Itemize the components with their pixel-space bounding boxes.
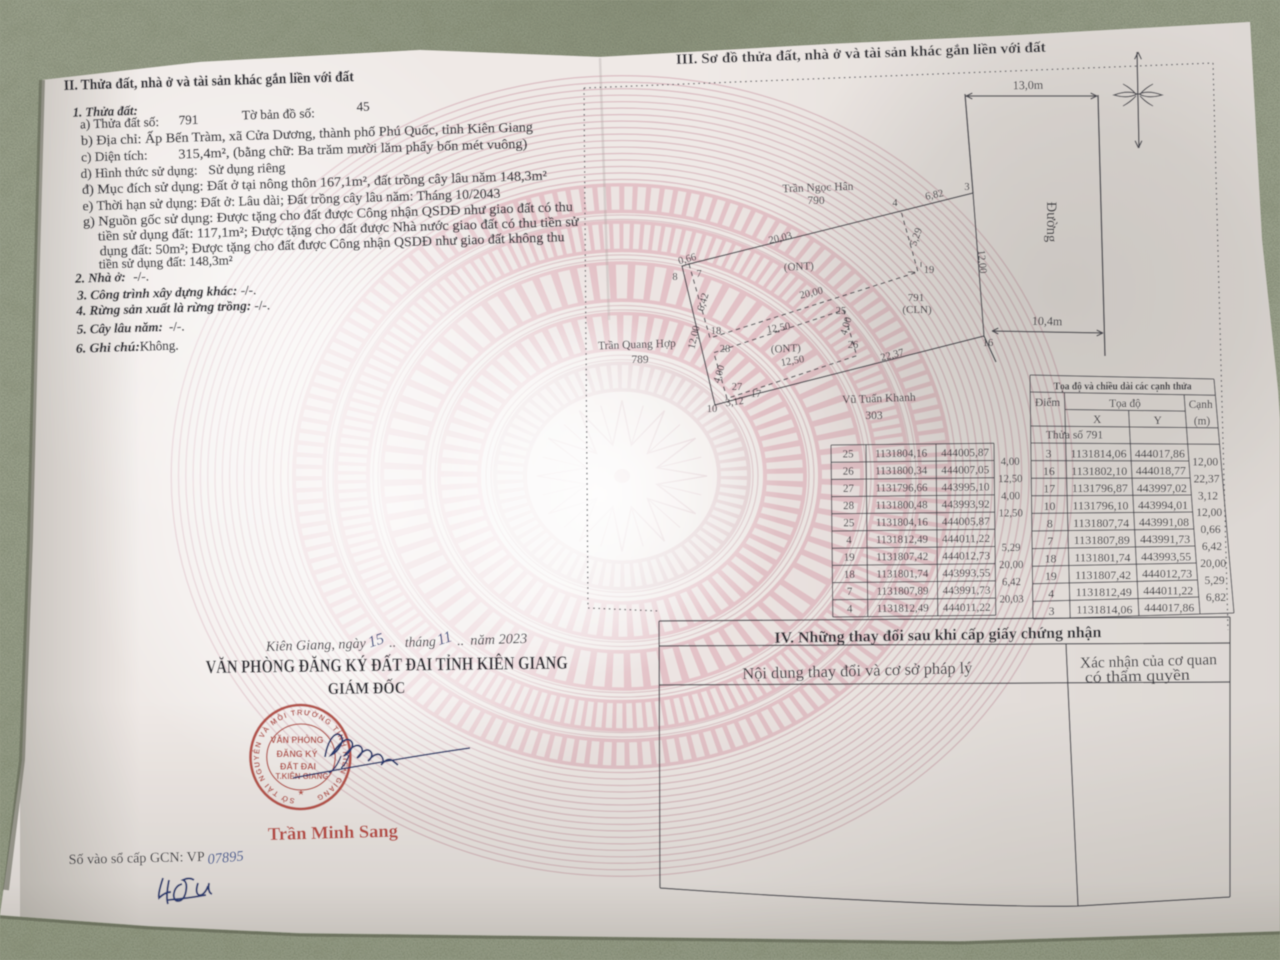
svg-text:20,00: 20,00: [1200, 558, 1226, 570]
svg-text:1131801,74: 1131801,74: [876, 568, 929, 581]
svg-text:13,0m: 13,0m: [1013, 78, 1044, 93]
svg-text:17: 17: [1043, 481, 1055, 495]
svg-text:a) Thửa đất số:: a) Thửa đất số:: [80, 114, 159, 131]
svg-text:6. Ghi chú:: 6. Ghi chú:: [76, 339, 140, 356]
svg-text:443991,73: 443991,73: [1140, 532, 1190, 546]
svg-text:791: 791: [179, 112, 199, 128]
svg-text:4: 4: [1048, 587, 1054, 601]
svg-text:27: 27: [732, 382, 743, 393]
svg-text:443997,02: 443997,02: [1137, 481, 1187, 495]
svg-text:7: 7: [1047, 534, 1053, 548]
svg-text:-/-.: -/-.: [254, 297, 270, 312]
svg-text:28: 28: [720, 344, 731, 355]
svg-text:ĐĂNG KÝ: ĐĂNG KÝ: [277, 748, 319, 759]
svg-text:Tọa độ: Tọa độ: [1109, 398, 1141, 410]
svg-text:..: ..: [389, 636, 396, 651]
svg-text:303: 303: [865, 410, 883, 422]
svg-text:19: 19: [844, 552, 856, 564]
svg-text:Tờ bản đồ số:: Tờ bản đồ số:: [242, 105, 315, 122]
svg-text:(ONT): (ONT): [771, 342, 802, 356]
svg-text:X: X: [1093, 414, 1101, 426]
svg-text:4: 4: [846, 534, 852, 546]
svg-text:45: 45: [356, 99, 369, 114]
svg-text:12,50: 12,50: [999, 507, 1023, 519]
svg-text:1131800,34: 1131800,34: [875, 465, 928, 478]
svg-text:444017,86: 444017,86: [1144, 601, 1194, 615]
svg-text:20,03: 20,03: [999, 593, 1023, 605]
svg-text:4: 4: [847, 603, 853, 615]
svg-text:12,00: 12,00: [975, 250, 988, 274]
svg-text:3: 3: [1049, 604, 1055, 618]
svg-text:12,00: 12,00: [1192, 456, 1218, 468]
svg-text:5,29: 5,29: [1205, 575, 1225, 587]
svg-text:-/-.: -/-.: [169, 318, 185, 333]
svg-text:1131796,87: 1131796,87: [1072, 481, 1128, 495]
svg-text:791: 791: [908, 292, 925, 304]
svg-text:16: 16: [983, 338, 994, 349]
svg-text:6,42: 6,42: [1202, 541, 1222, 553]
svg-text:17: 17: [751, 389, 762, 400]
svg-text:8: 8: [1047, 516, 1053, 530]
svg-text:1131814,06: 1131814,06: [1071, 446, 1127, 460]
svg-text:Số vào sổ cấp GCN: VP: Số vào sổ cấp GCN: VP: [69, 850, 206, 868]
svg-text:c) Diện tích:: c) Diện tích:: [81, 147, 148, 164]
svg-text:4: 4: [892, 198, 898, 209]
svg-text:10: 10: [707, 404, 718, 415]
svg-text:26: 26: [848, 340, 859, 351]
svg-text:26: 26: [843, 466, 855, 478]
svg-text:443993,55: 443993,55: [942, 567, 991, 580]
svg-text:Vũ Tuấn Khanh: Vũ Tuấn Khanh: [842, 391, 916, 407]
svg-text:25: 25: [843, 517, 855, 529]
svg-text:443993,55: 443993,55: [1141, 549, 1191, 563]
svg-text:3: 3: [964, 182, 969, 193]
svg-text:444011,22: 444011,22: [942, 533, 990, 546]
svg-text:7: 7: [847, 586, 853, 598]
svg-text:443991,08: 443991,08: [1139, 515, 1189, 529]
svg-text:5,29: 5,29: [1002, 542, 1021, 554]
svg-text:1131802,10: 1131802,10: [1071, 464, 1127, 478]
svg-text:Không.: Không.: [140, 338, 179, 354]
svg-text:444012,73: 444012,73: [942, 550, 991, 563]
svg-text:1131804,16: 1131804,16: [876, 516, 929, 529]
svg-text:444011,22: 444011,22: [943, 602, 991, 615]
svg-text:443995,10: 443995,10: [941, 481, 990, 494]
svg-text:444018,77: 444018,77: [1136, 464, 1186, 478]
svg-text:444005,87: 444005,87: [941, 447, 990, 460]
svg-text:28: 28: [843, 500, 855, 512]
svg-text:..: ..: [457, 634, 464, 649]
svg-text:6,82: 6,82: [1206, 592, 1226, 604]
svg-text:-/-.: -/-.: [133, 268, 149, 283]
svg-text:444005,87: 444005,87: [942, 516, 991, 529]
svg-text:5. Cây lâu năm:: 5. Cây lâu năm:: [77, 319, 163, 337]
svg-text:3: 3: [1046, 446, 1052, 460]
svg-text:-/-.: -/-.: [240, 282, 256, 297]
svg-text:(CLN): (CLN): [902, 304, 932, 316]
svg-text:★: ★: [297, 788, 304, 797]
svg-text:4,00: 4,00: [1001, 456, 1020, 468]
svg-text:18: 18: [711, 326, 722, 337]
svg-text:3,12: 3,12: [1198, 490, 1218, 502]
svg-text:1131807,42: 1131807,42: [876, 551, 928, 564]
svg-text:19: 19: [1045, 569, 1057, 583]
svg-text:GIÁM ĐỐC: GIÁM ĐỐC: [328, 677, 406, 698]
svg-text:1131796,10: 1131796,10: [1073, 498, 1129, 512]
svg-text:443991,73: 443991,73: [942, 585, 991, 598]
svg-text:1131812,49: 1131812,49: [1076, 585, 1132, 599]
svg-text:tháng: tháng: [405, 634, 437, 651]
svg-text:Điểm: Điểm: [1035, 397, 1060, 409]
svg-text:4,00: 4,00: [1001, 490, 1020, 502]
svg-text:444007,05: 444007,05: [941, 464, 990, 477]
svg-text:19: 19: [924, 265, 935, 276]
svg-text:25: 25: [843, 448, 855, 460]
svg-text:444011,22: 444011,22: [1143, 584, 1193, 598]
svg-text:2. Nhà ở:: 2. Nhà ở:: [74, 269, 126, 286]
svg-text:ĐẤT ĐAI: ĐẤT ĐAI: [280, 762, 316, 772]
svg-text:10: 10: [1044, 499, 1056, 513]
svg-text:12,50: 12,50: [998, 473, 1022, 485]
svg-text:1131796,66: 1131796,66: [875, 482, 928, 495]
svg-text:10,4m: 10,4m: [1032, 314, 1063, 329]
svg-text:22,37: 22,37: [1194, 473, 1220, 485]
svg-text:1131807,89: 1131807,89: [1074, 533, 1130, 547]
svg-text:Sử dụng riêng: Sử dụng riêng: [208, 160, 286, 177]
svg-text:Đường: Đường: [1043, 202, 1059, 243]
svg-text:Kiên Giang, ngày: Kiên Giang, ngày: [265, 636, 367, 655]
svg-text:20,00: 20,00: [999, 559, 1023, 571]
svg-text:Cạnh: Cạnh: [1189, 399, 1213, 411]
svg-text:6,42: 6,42: [1002, 576, 1021, 588]
svg-text:789: 789: [631, 354, 649, 366]
svg-text:12,00: 12,00: [1196, 507, 1222, 519]
svg-text:0,66: 0,66: [1201, 524, 1221, 536]
svg-text:444017,86: 444017,86: [1135, 447, 1185, 461]
svg-text:Trần Minh Sang: Trần Minh Sang: [268, 821, 398, 844]
svg-text:có thẩm quyền: có thẩm quyền: [1085, 667, 1191, 687]
svg-text:1131812,49: 1131812,49: [877, 602, 930, 615]
svg-text:năm 2023: năm 2023: [470, 631, 527, 649]
svg-text:7: 7: [696, 269, 701, 280]
svg-text:1131807,89: 1131807,89: [876, 585, 929, 598]
svg-text:(ONT): (ONT): [784, 260, 815, 274]
svg-text:1131800,48: 1131800,48: [876, 499, 929, 512]
svg-text:VĂN PHÒNG: VĂN PHÒNG: [271, 734, 324, 745]
svg-text:Y: Y: [1154, 415, 1162, 427]
svg-text:Trần Quang Hợp: Trần Quang Hợp: [598, 337, 677, 353]
svg-text:18: 18: [844, 569, 856, 581]
svg-text:Trần Ngọc Hân: Trần Ngọc Hân: [782, 180, 854, 195]
svg-text:443993,92: 443993,92: [942, 499, 990, 512]
svg-text:8: 8: [672, 272, 677, 283]
svg-text:1131804,16: 1131804,16: [875, 448, 928, 461]
svg-text:1131801,74: 1131801,74: [1074, 550, 1130, 564]
svg-text:Tọa độ và chiều dài các cạnh t: Tọa độ và chiều dài các cạnh thửa: [1054, 382, 1192, 393]
svg-text:1131807,42: 1131807,42: [1075, 568, 1131, 582]
svg-text:443994,01: 443994,01: [1138, 498, 1188, 512]
svg-text:27: 27: [843, 483, 855, 495]
svg-text:444012,73: 444012,73: [1142, 566, 1192, 580]
svg-text:1131812,49: 1131812,49: [876, 534, 929, 547]
svg-text:25: 25: [836, 306, 847, 317]
svg-text:1131807,74: 1131807,74: [1073, 516, 1129, 530]
svg-text:1131814,06: 1131814,06: [1076, 603, 1132, 617]
svg-text:Thửa số 791: Thửa số 791: [1046, 429, 1104, 442]
svg-text:16: 16: [1043, 464, 1055, 478]
svg-text:18: 18: [1045, 551, 1057, 565]
svg-text:(m): (m): [1194, 415, 1211, 427]
svg-text:790: 790: [807, 195, 825, 207]
